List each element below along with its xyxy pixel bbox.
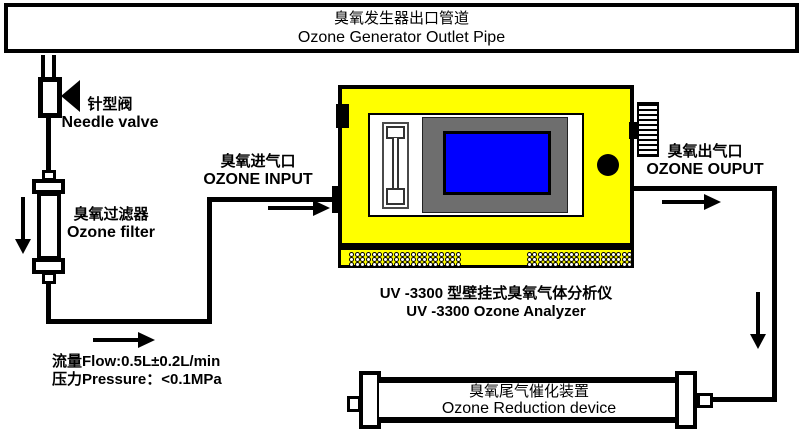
vent-dot: [548, 262, 553, 267]
vent-dot: [445, 262, 450, 267]
vent-dot: [595, 262, 600, 267]
banner-title-cn: 臭氧发生器出口管道: [334, 9, 469, 28]
pipe-banner-to-valve: [41, 55, 56, 78]
pipe-filter-down: [46, 283, 51, 324]
reduction-device-body: 臭氧尾气催化装置 Ozone Reduction device: [379, 377, 679, 423]
down-arrow2-head-icon: [750, 334, 766, 349]
vent-dot: [422, 262, 427, 267]
vent-dot: [627, 262, 632, 267]
down-arrow-icon: [21, 197, 25, 241]
vent-dot: [383, 262, 388, 267]
vent-dot: [569, 262, 574, 267]
vent-dot: [564, 262, 569, 267]
generator-outlet-pipe-box: 臭氧发生器出口管道 Ozone Generator Outlet Pipe: [4, 3, 799, 53]
ozone-input-label-cn: 臭氧进气口: [198, 153, 318, 171]
vent-dot: [585, 262, 590, 267]
input-arrow-icon: [268, 206, 315, 210]
vent-dot: [450, 262, 455, 267]
analyzer-caption: UV -3300 型壁挂式臭氧气体分析仪 UV -3300 Ozone Anal…: [351, 285, 641, 321]
ozone-output-label-cn: 臭氧出气口: [644, 143, 766, 161]
right-arrow-head-icon: [138, 332, 155, 348]
device-right-connector: [697, 393, 713, 408]
ozone-output-label: 臭氧出气口 OZONE OUPUT: [644, 143, 766, 179]
vent-dot: [532, 262, 537, 267]
pipe-analyzer-output: [632, 186, 777, 191]
analyzer-left-mount-nub: [336, 104, 349, 128]
pipe-riser-vertical: [207, 197, 212, 324]
vent-dot: [611, 262, 616, 267]
analyzer-caption-cn: UV -3300 型壁挂式臭氧气体分析仪: [351, 285, 641, 303]
vent-dot: [439, 262, 444, 267]
needle-valve-label-cn: 针型阀: [50, 96, 170, 114]
pipe-bottom-horizontal: [46, 319, 212, 324]
output-arrow-head-icon: [704, 194, 721, 210]
down-arrow2-icon: [756, 292, 760, 336]
vent-dot: [355, 262, 360, 267]
ozone-filter-label-cn: 臭氧过滤器: [50, 206, 172, 224]
vent-dot: [360, 262, 365, 267]
vent-holes-right: [527, 252, 632, 266]
reduction-device-label-en: Ozone Reduction device: [442, 400, 616, 417]
banner-title-en: Ozone Generator Outlet Pipe: [298, 28, 505, 47]
input-arrow-head-icon: [313, 200, 330, 216]
ozone-output-label-en: OZONE OUPUT: [644, 161, 766, 179]
ozone-input-label: 臭氧进气口 OZONE INPUT: [198, 153, 318, 189]
vent-dot: [411, 262, 416, 267]
ozone-analyzer-piping-diagram: 臭氧发生器出口管道 Ozone Generator Outlet Pipe 针型…: [0, 0, 807, 433]
vent-strip: [338, 247, 634, 268]
vent-dot: [388, 262, 393, 267]
down-arrow-head-icon: [15, 239, 31, 254]
flow-pressure-specs: 流量Flow:0.5L±0.2L/min 压力Pressure：<0.1MPa: [52, 353, 252, 389]
vent-dot: [601, 262, 606, 267]
vent-row: [527, 262, 632, 267]
vent-dot: [377, 262, 382, 267]
device-left-cap: [359, 371, 381, 429]
pipe-to-reduction-device: [711, 397, 777, 402]
needle-valve-label: 针型阀 Needle valve: [50, 96, 170, 132]
vent-row: [349, 262, 461, 267]
vent-dot: [553, 262, 558, 267]
power-knob[interactable]: [597, 154, 619, 176]
vent-dot: [366, 262, 371, 267]
vent-dot: [372, 262, 377, 267]
vent-dot: [622, 262, 627, 267]
vent-dot: [527, 262, 532, 267]
reduction-device-label-cn: 臭氧尾气催化装置: [469, 384, 589, 400]
vent-dot: [428, 262, 433, 267]
device-right-cap: [675, 371, 697, 429]
vent-dot: [433, 262, 438, 267]
vent-dot: [400, 262, 405, 267]
ozone-filter-label-en: Ozone filter: [50, 224, 172, 242]
vent-dot: [405, 262, 410, 267]
needle-valve-label-en: Needle valve: [50, 114, 170, 132]
flow-meter-tube: [392, 138, 399, 190]
vent-dot: [394, 262, 399, 267]
vent-dot: [538, 262, 543, 267]
right-arrow-icon: [93, 338, 140, 342]
ozone-filter-label: 臭氧过滤器 Ozone filter: [50, 206, 172, 242]
flow-spec: 流量Flow:0.5L±0.2L/min: [52, 353, 252, 371]
output-arrow-icon: [662, 200, 707, 204]
vent-dot: [590, 262, 595, 267]
ozone-input-label-en: OZONE INPUT: [198, 171, 318, 189]
flow-meter-bottom-fitting: [386, 188, 405, 205]
analyzer-caption-en: UV -3300 Ozone Analyzer: [351, 303, 641, 321]
vent-dot: [580, 262, 585, 267]
vent-dot: [349, 262, 354, 267]
pressure-spec: 压力Pressure：<0.1MPa: [52, 371, 252, 389]
vent-dot: [559, 262, 564, 267]
pipe-valve-to-filter: [46, 117, 51, 173]
vent-holes-left: [349, 252, 461, 266]
lcd-screen: [443, 131, 551, 195]
vent-dot: [456, 262, 461, 267]
vent-dot: [616, 262, 621, 267]
vent-dot: [417, 262, 422, 267]
vent-dot: [606, 262, 611, 267]
vent-dot: [574, 262, 579, 267]
heat-sink-mount: [629, 122, 639, 139]
vent-dot: [543, 262, 548, 267]
pipe-right-vertical: [772, 186, 777, 402]
